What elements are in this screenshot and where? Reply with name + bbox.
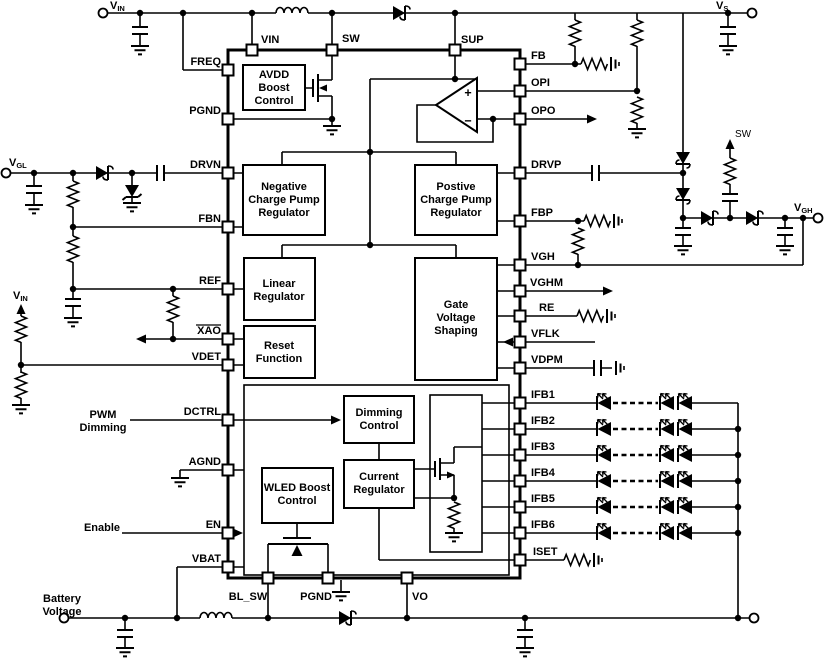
mosfet-arrow bbox=[292, 545, 303, 556]
resistor bbox=[573, 228, 584, 254]
ground-symbol bbox=[445, 533, 463, 541]
vgl-network: VGL bbox=[2, 157, 223, 326]
capacitor bbox=[517, 630, 533, 637]
pgnd-bottom-ground bbox=[332, 580, 350, 600]
pin-label-pgnd-bottom: PGND bbox=[300, 591, 332, 603]
schematic-page: VIN VS bbox=[0, 0, 829, 668]
block-label: Voltage bbox=[437, 312, 476, 324]
pin-label-fb: FB bbox=[531, 50, 546, 62]
resistor bbox=[584, 216, 610, 227]
arrow-right-icon bbox=[587, 115, 597, 124]
block-label: Boost bbox=[258, 82, 290, 94]
pin-label-sup: SUP bbox=[461, 34, 484, 46]
pin-label-vin: VIN bbox=[261, 34, 279, 46]
pin-drvp bbox=[515, 168, 526, 179]
led-string-4 bbox=[526, 472, 741, 489]
vin-net-label: VIN bbox=[110, 0, 125, 13]
capacitor bbox=[132, 27, 148, 34]
sw-net-label: SW bbox=[735, 129, 752, 140]
pin-label-freq: FREQ bbox=[190, 56, 221, 68]
ground-symbol bbox=[25, 205, 43, 213]
arrow-left-icon bbox=[503, 338, 513, 347]
pin-label-vflk: VFLK bbox=[531, 328, 560, 340]
pin-ifb1 bbox=[515, 398, 526, 409]
pin-label-drvn: DRVN bbox=[190, 159, 221, 171]
pin-label-vghm: VGHM bbox=[530, 277, 563, 289]
block-label: Reset bbox=[264, 340, 294, 352]
block-label: WLED Boost bbox=[264, 482, 331, 494]
pin-fbn bbox=[223, 222, 234, 233]
opamp-minus: − bbox=[464, 114, 471, 128]
pin-vbat bbox=[223, 562, 234, 573]
vgl-terminal bbox=[2, 169, 11, 178]
avdd-boost-section: AVDD Boost Control bbox=[233, 55, 341, 134]
ground-symbol bbox=[516, 648, 534, 656]
pin-vdpm bbox=[515, 363, 526, 374]
pin-label-ifb3: IFB3 bbox=[531, 441, 555, 453]
led-string-3 bbox=[526, 446, 741, 463]
pin-pgnd-bottom bbox=[323, 573, 334, 584]
block-negative-charge-pump: Negative Charge Pump Regulator bbox=[243, 165, 325, 235]
ground-symbol bbox=[323, 126, 341, 134]
pin-vo bbox=[402, 573, 413, 584]
pin-label-dctrl: DCTRL bbox=[184, 406, 222, 418]
pin-label-drvp: DRVP bbox=[531, 159, 561, 171]
pin-label-xao: XAO bbox=[197, 325, 221, 337]
led-string-1 bbox=[526, 394, 738, 411]
pin-sw bbox=[327, 45, 338, 56]
block-label: Current bbox=[359, 471, 399, 483]
series-capacitor bbox=[157, 165, 164, 181]
ground-symbol bbox=[171, 478, 189, 486]
pin-label-vgh: VGH bbox=[531, 251, 555, 263]
resistor bbox=[68, 236, 79, 262]
block-label: Negative bbox=[261, 181, 307, 193]
vgh-net-label: VGH bbox=[794, 202, 813, 215]
fb-compensation-network bbox=[526, 13, 619, 71]
ground-symbol bbox=[776, 246, 794, 254]
pin-ref bbox=[223, 284, 234, 295]
pin-label-pgnd: PGND bbox=[189, 105, 221, 117]
resistor bbox=[16, 316, 27, 342]
resistor bbox=[449, 502, 460, 528]
capacitor bbox=[675, 228, 691, 235]
pin-sup bbox=[450, 45, 461, 56]
vgh-charge-pump-network: SW VGH bbox=[526, 13, 823, 268]
block-reset-function: Reset Function bbox=[244, 326, 315, 378]
pin-label-en: EN bbox=[206, 519, 221, 531]
small-cap-to-ground bbox=[611, 57, 619, 71]
pin-label-iset: ISET bbox=[533, 546, 558, 558]
pin-vgh bbox=[515, 260, 526, 271]
pwm-label-line2: Dimming bbox=[79, 422, 126, 434]
capacitor bbox=[117, 630, 133, 637]
resistor bbox=[168, 296, 179, 322]
resistor bbox=[570, 20, 581, 46]
pin-label-vo: VO bbox=[412, 591, 428, 603]
vgh-terminal bbox=[814, 214, 823, 223]
block-label: Regulator bbox=[253, 291, 305, 303]
wled-boost-inductor bbox=[200, 613, 232, 619]
capacitor bbox=[26, 186, 42, 193]
ground-symbol bbox=[628, 129, 646, 137]
pin-label-fbn: FBN bbox=[198, 213, 221, 225]
pin-label-opi: OPI bbox=[531, 77, 550, 89]
pin-blsw bbox=[263, 573, 274, 584]
pin-ifb6 bbox=[515, 528, 526, 539]
pin-label-sw: SW bbox=[342, 33, 360, 45]
pin-label-ifb2: IFB2 bbox=[531, 415, 555, 427]
schematic-canvas: VIN VS bbox=[0, 0, 829, 668]
pin-vdet bbox=[223, 360, 234, 371]
vbat-wire bbox=[177, 567, 222, 618]
block-wled-boost-control: WLED Boost Control bbox=[262, 468, 333, 523]
block-label: AVDD bbox=[259, 69, 289, 81]
pin-label-re: RE bbox=[539, 302, 554, 314]
arrow-right-icon bbox=[331, 416, 341, 425]
pin-vflk bbox=[515, 337, 526, 348]
current-sink-mosfet bbox=[414, 447, 482, 541]
pin-label-vbat: VBAT bbox=[192, 553, 221, 565]
enable-label: Enable bbox=[84, 522, 120, 534]
pin-drvn bbox=[223, 168, 234, 179]
pin-label-ifb6: IFB6 bbox=[531, 519, 555, 531]
pin-label-ref: REF bbox=[199, 275, 221, 287]
pin-re bbox=[515, 311, 526, 322]
small-cap-to-ground bbox=[614, 214, 622, 228]
capacitor bbox=[720, 27, 736, 34]
capacitor bbox=[65, 299, 81, 306]
pin-xao bbox=[223, 334, 234, 345]
wled-array bbox=[526, 394, 741, 619]
block-label: Charge Pump bbox=[420, 194, 492, 206]
pin-pgnd bbox=[223, 114, 234, 125]
zener-diode bbox=[123, 185, 142, 200]
pin-dctrl bbox=[223, 415, 234, 426]
enable-input: Enable bbox=[84, 522, 222, 534]
ground-symbol bbox=[674, 246, 692, 254]
block-dimming-control: Dimming Control bbox=[344, 396, 414, 443]
block-label: Dimming bbox=[355, 407, 402, 419]
small-cap-to-ground bbox=[607, 309, 615, 323]
pin-en bbox=[223, 528, 234, 539]
pin-agnd bbox=[223, 465, 234, 476]
pin-label-ifb5: IFB5 bbox=[531, 493, 555, 505]
resistor bbox=[632, 20, 643, 46]
arrow-right-icon bbox=[603, 287, 613, 296]
block-current-regulator: Current Regulator bbox=[344, 460, 414, 508]
mosfet-arrow bbox=[319, 85, 327, 92]
block-label: Shaping bbox=[434, 325, 477, 337]
pin-label-opo: OPO bbox=[531, 105, 556, 117]
small-cap-to-ground bbox=[616, 361, 624, 375]
block-label: Regulator bbox=[258, 207, 310, 219]
block-label: Regulator bbox=[430, 207, 482, 219]
pin-ifb2 bbox=[515, 424, 526, 435]
resistor bbox=[581, 59, 607, 70]
pin-label-agnd: AGND bbox=[189, 456, 221, 468]
block-label: Control bbox=[254, 95, 293, 107]
resistor bbox=[725, 158, 736, 184]
ground-symbol bbox=[12, 405, 30, 413]
pin-fbp bbox=[515, 216, 526, 227]
battery-terminal bbox=[60, 614, 69, 623]
vs-output-cap bbox=[719, 10, 737, 55]
block-label: Control bbox=[277, 495, 316, 507]
opamp: + − bbox=[417, 78, 514, 142]
agnd-ground bbox=[171, 470, 222, 486]
vgl-net-label: VGL bbox=[9, 157, 27, 170]
capacitor bbox=[592, 165, 599, 181]
vdet-divider: VIN bbox=[12, 290, 222, 413]
boost-inductor bbox=[276, 8, 308, 14]
block-label: Gate bbox=[444, 299, 468, 311]
pin-label-blsw: BL_SW bbox=[229, 591, 268, 603]
pin-ifb3 bbox=[515, 450, 526, 461]
block-linear-regulator: Linear Regulator bbox=[244, 258, 315, 320]
wled-subsection: Dimming Control Current Regulator WLED B… bbox=[244, 385, 514, 575]
block-label: Control bbox=[359, 420, 398, 432]
vin-divider-label: VIN bbox=[13, 290, 28, 303]
pin-freq bbox=[223, 65, 234, 76]
led-string-2 bbox=[526, 420, 741, 437]
ground-symbol bbox=[64, 318, 82, 326]
resistor bbox=[16, 372, 27, 398]
led-string-5 bbox=[526, 498, 741, 515]
block-label: Function bbox=[256, 353, 303, 365]
resistor bbox=[632, 97, 643, 123]
pin-iset bbox=[515, 555, 526, 566]
vs-terminal bbox=[748, 9, 757, 18]
capacitor bbox=[722, 194, 738, 201]
pin-label-ifb4: IFB4 bbox=[531, 467, 556, 479]
vin-terminal bbox=[99, 9, 108, 18]
small-cap-to-ground bbox=[594, 553, 602, 567]
block-label: Linear bbox=[262, 278, 296, 290]
resistor bbox=[564, 555, 590, 566]
current-sink-boundary bbox=[430, 395, 482, 552]
pin-label-vdet: VDET bbox=[192, 351, 222, 363]
capacitor bbox=[594, 360, 601, 376]
vo-terminal bbox=[750, 614, 759, 623]
arrow-up-icon bbox=[726, 139, 735, 149]
ground-symbol bbox=[332, 592, 350, 600]
block-label: Charge Pump bbox=[248, 194, 320, 206]
block-positive-charge-pump: Postive Charge Pump Regulator bbox=[415, 165, 497, 235]
wled-power-mosfet bbox=[268, 523, 328, 572]
capacitor bbox=[777, 228, 793, 235]
block-gate-voltage-shaping: Gate Voltage Shaping bbox=[415, 258, 497, 380]
ground-symbol bbox=[131, 46, 149, 54]
block-label: Regulator bbox=[353, 484, 405, 496]
pin-label-vdpm: VDPM bbox=[531, 354, 563, 366]
battery-rail: Battery Voltage bbox=[43, 584, 759, 656]
pin-fb bbox=[515, 59, 526, 70]
pin-label-fbp: FBP bbox=[531, 207, 553, 219]
pin-ifb4 bbox=[515, 476, 526, 487]
resistor bbox=[68, 181, 79, 207]
pin-opi bbox=[515, 86, 526, 97]
vs-net-label: VS bbox=[716, 0, 728, 13]
ground-symbol bbox=[116, 648, 134, 656]
pwm-label-line1: PWM bbox=[90, 409, 117, 421]
opamp-plus: + bbox=[464, 86, 471, 100]
ic-body: + − AVDD Boost Control Negative bbox=[228, 50, 520, 600]
ground-symbol bbox=[719, 46, 737, 54]
pin-ifb5 bbox=[515, 502, 526, 513]
pin-vin bbox=[247, 45, 258, 56]
led-string-6 bbox=[526, 524, 741, 541]
ground-symbol bbox=[123, 203, 141, 211]
block-label: Postive bbox=[436, 181, 475, 193]
pin-opo bbox=[515, 114, 526, 125]
vin-filter-cap bbox=[131, 10, 149, 55]
battery-label-line1: Battery bbox=[43, 593, 82, 605]
pin-vghm bbox=[515, 286, 526, 297]
pin-label-ifb1: IFB1 bbox=[531, 389, 555, 401]
resistor bbox=[577, 311, 603, 322]
